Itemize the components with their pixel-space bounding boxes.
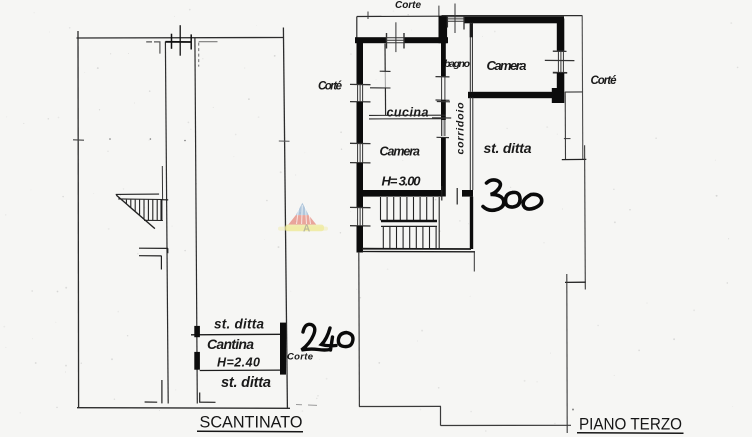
svg-text:Camera: Camera bbox=[380, 145, 421, 159]
svg-text:SCANTINATO: SCANTINATO bbox=[200, 413, 303, 432]
svg-text:A: A bbox=[303, 224, 310, 235]
svg-text:st. ditta: st. ditta bbox=[484, 140, 532, 156]
svg-text:bagno: bagno bbox=[444, 58, 471, 70]
svg-text:Corté: Corté bbox=[318, 81, 343, 93]
svg-text:Corté: Corté bbox=[591, 75, 618, 87]
svg-text:corridoio: corridoio bbox=[455, 102, 467, 155]
svg-text:H= 3.00: H= 3.00 bbox=[382, 174, 422, 189]
svg-text:cucina: cucina bbox=[387, 106, 429, 120]
svg-text:PIANO TERZO: PIANO TERZO bbox=[579, 416, 682, 434]
svg-text:H=2.40: H=2.40 bbox=[217, 356, 260, 370]
svg-text:Corte: Corte bbox=[287, 352, 314, 363]
svg-text:st. ditta: st. ditta bbox=[214, 317, 264, 332]
svg-text:Corte: Corte bbox=[395, 0, 421, 11]
svg-text:Cantina: Cantina bbox=[207, 336, 254, 352]
svg-text:st. ditta: st. ditta bbox=[221, 375, 271, 391]
svg-text:Camera: Camera bbox=[487, 58, 527, 73]
